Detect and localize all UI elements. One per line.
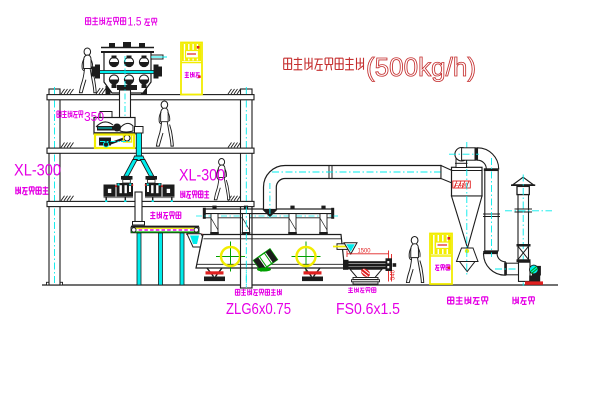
svg-text:350: 350 (84, 110, 104, 124)
svg-text:XL-300: XL-300 (14, 162, 61, 180)
svg-text:FS0.6x1.5: FS0.6x1.5 (336, 301, 400, 318)
svg-text:1.5: 1.5 (128, 17, 142, 29)
svg-text:F400: F400 (455, 183, 468, 189)
svg-text:1500: 1500 (358, 249, 372, 255)
svg-text:ZLG6x0.75: ZLG6x0.75 (226, 301, 291, 318)
svg-text:XL-300: XL-300 (179, 167, 225, 185)
svg-text:(500kg/h): (500kg/h) (366, 52, 476, 82)
